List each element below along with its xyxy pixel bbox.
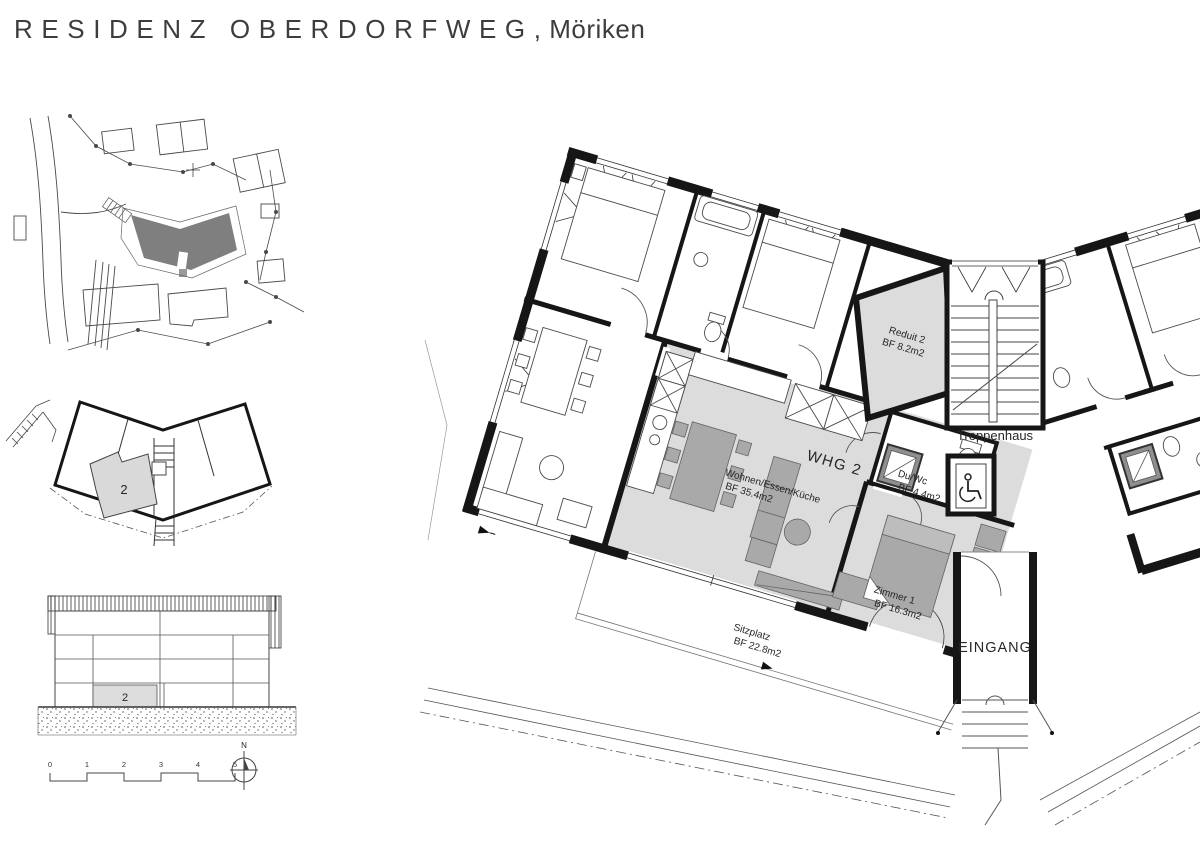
key-plan-unit-number: 2 [120, 482, 127, 497]
scale-tick-0: 0 [48, 760, 52, 769]
site-target-building [102, 198, 246, 278]
project-name: RESIDENZ OBERDORFWEG [14, 14, 534, 44]
plan-sheet: RESIDENZ OBERDORFWEG, Möriken [0, 0, 1200, 845]
reduit2-room: Reduit 2 BF 8.2m2 [856, 268, 952, 418]
scale-bar-wave [50, 773, 235, 781]
entrance-label: EINGANG [958, 640, 1032, 656]
entrance-corridor: EINGANG [953, 552, 1037, 704]
site-survey-cross-icon [186, 163, 200, 177]
key-plan-ramp [6, 400, 56, 447]
floor-plan: WM TU WHG 2 Wohnen/Essen/Küche BF 35.4m2 [420, 85, 1200, 845]
north-arrow: N [222, 738, 266, 796]
elevation-facade: 2 [55, 611, 269, 707]
project-location: , Möriken [534, 14, 646, 44]
elevation-ground [38, 707, 296, 735]
scale-tick-4: 4 [196, 760, 200, 769]
elevation-unit-number: 2 [122, 692, 128, 704]
sheet-title: RESIDENZ OBERDORFWEG, Möriken [14, 14, 645, 45]
elevator [948, 456, 994, 514]
stairwell [947, 258, 1043, 428]
site-roads [30, 116, 126, 350]
north-label: N [241, 741, 247, 750]
elevation-drawing: 2 [18, 590, 303, 742]
scale-tick-2: 2 [122, 760, 126, 769]
key-plan-outline [55, 402, 270, 520]
scale-tick-3: 3 [159, 760, 163, 769]
compass-icon [230, 751, 258, 790]
scale-tick-1: 1 [85, 760, 89, 769]
entrance-steps [936, 696, 1054, 825]
key-plan: 2 [0, 386, 295, 556]
key-plan-unit-2: 2 [90, 452, 166, 518]
site-plan [8, 112, 308, 352]
stairs-label: Treppenhaus [957, 428, 1034, 443]
